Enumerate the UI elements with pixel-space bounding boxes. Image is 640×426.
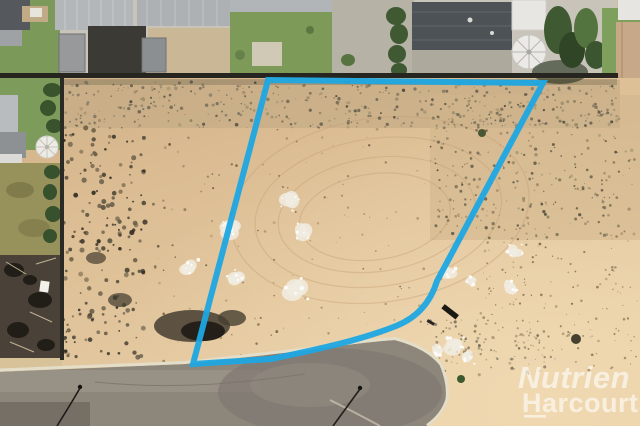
aerial-photo: Nutrien Harcourts bbox=[0, 0, 640, 426]
skylight bbox=[490, 31, 494, 35]
white-roof-corner bbox=[618, 0, 640, 20]
house-roof-3 bbox=[230, 0, 332, 12]
dark-backyard bbox=[88, 26, 146, 76]
small-bush bbox=[571, 334, 581, 344]
white-van bbox=[0, 154, 22, 163]
side-roof bbox=[0, 95, 18, 133]
paving bbox=[412, 50, 512, 76]
patio-slab bbox=[252, 42, 282, 66]
aerial-photo-canvas: Nutrien Harcourts bbox=[0, 0, 640, 426]
roof-corner-lower bbox=[0, 30, 22, 46]
small-bush bbox=[457, 375, 465, 383]
white-litter bbox=[39, 280, 49, 292]
watermark: Nutrien Harcourts bbox=[518, 360, 640, 418]
side-fence-line bbox=[60, 78, 64, 360]
left-neighbour-strip bbox=[0, 78, 64, 374]
white-garage bbox=[512, 0, 546, 30]
skylight bbox=[468, 18, 473, 23]
small-bush bbox=[478, 129, 486, 137]
houses-top-band bbox=[0, 0, 640, 84]
house-4-yard bbox=[332, 0, 512, 77]
house-roof-1 bbox=[55, 0, 133, 30]
brick-wall bbox=[616, 22, 640, 78]
yard-clutter bbox=[30, 8, 42, 17]
watermark-brand-line2: Harcourts bbox=[522, 388, 640, 418]
back-fence-line bbox=[0, 73, 618, 78]
house-roof-2 bbox=[137, 0, 230, 26]
house-3-yard bbox=[230, 0, 332, 76]
garden-shed bbox=[142, 38, 166, 72]
garden-shed bbox=[59, 34, 85, 72]
shade-umbrella bbox=[36, 136, 58, 158]
watermark-underline bbox=[524, 415, 546, 418]
